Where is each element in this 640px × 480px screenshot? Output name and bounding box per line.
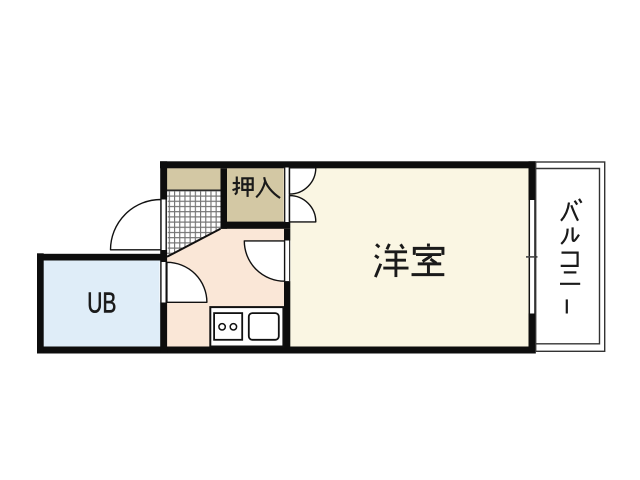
- svg-text:UB: UB: [87, 287, 116, 319]
